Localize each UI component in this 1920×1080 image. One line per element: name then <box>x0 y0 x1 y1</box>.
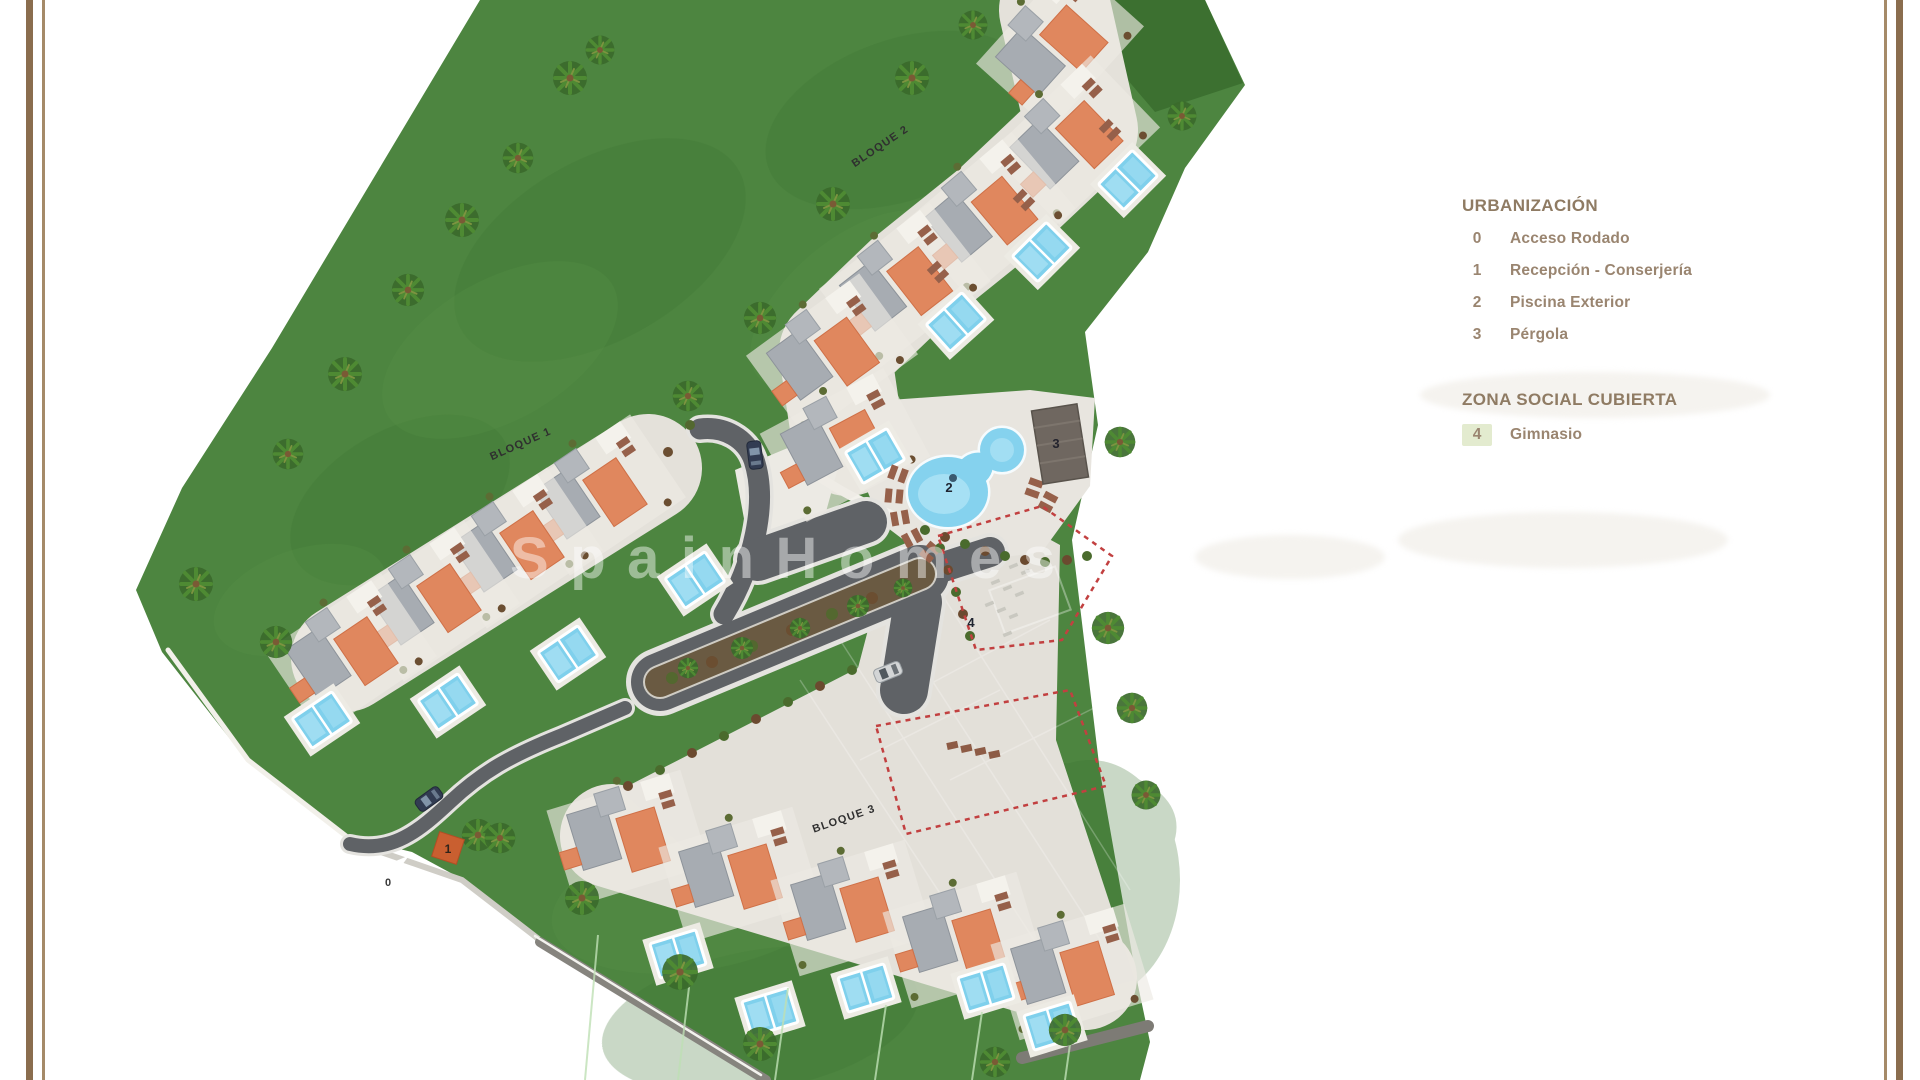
legend-item-number: 2 <box>1462 294 1492 312</box>
legend: URBANIZACIÓN 0 Acceso Rodado 1 Recepción… <box>1462 196 1802 460</box>
legend-item-number: 1 <box>1462 262 1492 280</box>
legend-item-pergola: 3 Pérgola <box>1462 326 1802 344</box>
legend-item-label: Recepción - Conserjería <box>1510 262 1692 280</box>
site-plan-page: BLOQUE 2 BLOQUE 1 BLOQUE 3 2 3 4 1 0 Spa… <box>0 0 1920 1080</box>
legend-item-recepcion: 1 Recepción - Conserjería <box>1462 262 1802 280</box>
legend-item-gimnasio: 4 Gimnasio <box>1462 424 1802 446</box>
marker-3: 3 <box>1052 436 1059 451</box>
faded-smudge <box>1195 535 1385 579</box>
legend-title-urbanizacion: URBANIZACIÓN <box>1462 196 1802 216</box>
legend-item-number: 0 <box>1462 230 1492 248</box>
legend-item-piscina-exterior: 2 Piscina Exterior <box>1462 294 1802 312</box>
legend-item-number-highlighted: 4 <box>1462 424 1492 446</box>
watermark-text: SpainHomes <box>510 526 1055 591</box>
legend-item-label: Piscina Exterior <box>1510 294 1630 312</box>
car <box>746 440 763 469</box>
marker-4: 4 <box>967 615 975 630</box>
faded-smudge <box>1398 512 1728 568</box>
legend-item-label: Gimnasio <box>1510 426 1582 444</box>
marker-0: 0 <box>385 877 391 889</box>
marker-2: 2 <box>945 480 952 495</box>
legend-item-acceso-rodado: 0 Acceso Rodado <box>1462 230 1802 248</box>
legend-item-label: Pérgola <box>1510 326 1568 344</box>
legend-title-zona-social: ZONA SOCIAL CUBIERTA <box>1462 390 1802 410</box>
marker-1: 1 <box>445 842 452 856</box>
legend-item-label: Acceso Rodado <box>1510 230 1630 248</box>
legend-item-number: 3 <box>1462 326 1492 344</box>
